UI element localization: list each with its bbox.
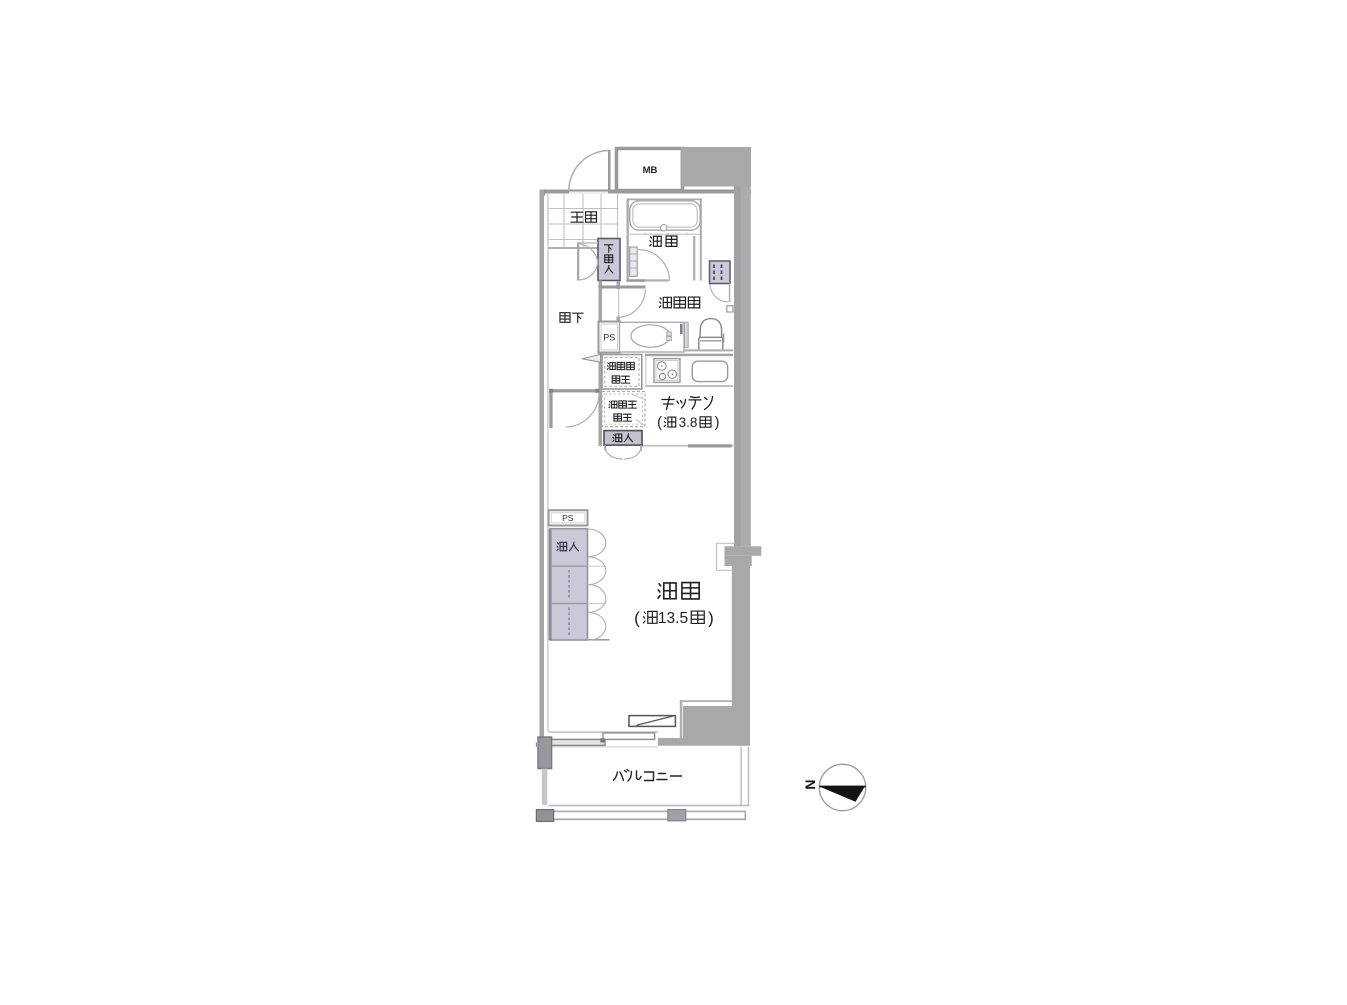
- svg-text:): ): [715, 415, 720, 431]
- svg-text:13.5: 13.5: [658, 610, 688, 627]
- svg-text:3.8: 3.8: [679, 415, 698, 430]
- svg-text:MB: MB: [643, 165, 658, 176]
- svg-text:PS: PS: [562, 513, 574, 523]
- svg-text:): ): [708, 609, 714, 628]
- svg-text:PS: PS: [603, 333, 615, 343]
- svg-text:N: N: [802, 779, 818, 789]
- svg-text:(: (: [634, 609, 640, 628]
- svg-text:(: (: [657, 415, 662, 431]
